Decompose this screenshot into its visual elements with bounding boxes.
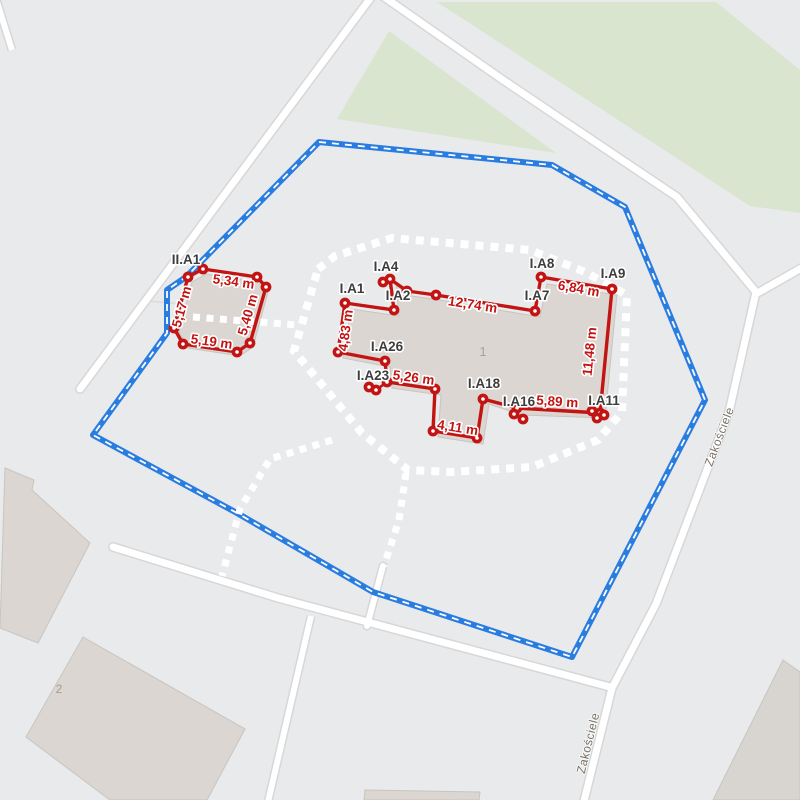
- map-canvas[interactable]: Zakościele Zakościele 1 2 II.A1 I.A1 I.A…: [0, 0, 800, 800]
- building-number-2: 2: [56, 682, 63, 696]
- vertex-marker[interactable]: [372, 386, 379, 393]
- vertex-marker[interactable]: [600, 411, 607, 418]
- vertex-marker[interactable]: [537, 273, 544, 280]
- building-number-1: 1: [479, 344, 486, 359]
- vertex-marker[interactable]: [379, 278, 386, 285]
- vertex-label-IA11: I.A11: [588, 393, 620, 408]
- building-northwest: [0, 468, 90, 643]
- vertex-marker[interactable]: [432, 291, 439, 298]
- measurement-5-89: 5,89 m: [536, 393, 579, 411]
- building-2-footprint: [26, 637, 245, 800]
- vertex-label-IA8: I.A8: [530, 256, 555, 271]
- vertex-marker[interactable]: [390, 306, 397, 313]
- map-svg[interactable]: Zakościele Zakościele 1 2 II.A1 I.A1 I.A…: [0, 0, 800, 800]
- vertex-marker[interactable]: [262, 283, 269, 290]
- vertex-marker[interactable]: [341, 299, 348, 306]
- road-south-branch: [268, 616, 311, 800]
- green-areas: [337, 2, 800, 213]
- vertex-label-IA18: I.A18: [468, 376, 501, 391]
- dotted-path-south: [384, 473, 406, 566]
- vertex-label-IA7: I.A7: [525, 288, 550, 303]
- building-bottom-right: [713, 660, 800, 800]
- vertex-marker[interactable]: [531, 307, 538, 314]
- vertex-label-IA4: I.A4: [374, 259, 399, 274]
- vertex-marker[interactable]: [519, 415, 526, 422]
- vertex-label-IA1: I.A1: [340, 281, 365, 296]
- vertex-label-IA23: I.A23: [357, 368, 390, 383]
- street-label-zakosciele-1: Zakościele: [702, 405, 737, 468]
- street-labels: Zakościele Zakościele: [574, 405, 737, 775]
- vertex-label-IA16: I.A16: [503, 394, 536, 409]
- vertex-marker[interactable]: [184, 273, 191, 280]
- vertex-label-IIA1: II.A1: [172, 252, 201, 267]
- vertex-marker[interactable]: [199, 265, 206, 272]
- vertex-marker[interactable]: [608, 285, 615, 292]
- vertex-label-IA9: I.A9: [601, 266, 626, 281]
- vertex-marker[interactable]: [510, 410, 517, 417]
- vertex-marker[interactable]: [479, 395, 486, 402]
- vertex-label-IA2: I.A2: [386, 288, 411, 303]
- vertex-marker[interactable]: [246, 339, 253, 346]
- vertex-marker[interactable]: [233, 348, 240, 355]
- vertex-marker[interactable]: [381, 357, 388, 364]
- road-south: [113, 547, 610, 687]
- vertex-label-IA26: I.A26: [371, 339, 404, 354]
- building-bottom-center: [364, 790, 480, 800]
- vertex-marker[interactable]: [179, 340, 186, 347]
